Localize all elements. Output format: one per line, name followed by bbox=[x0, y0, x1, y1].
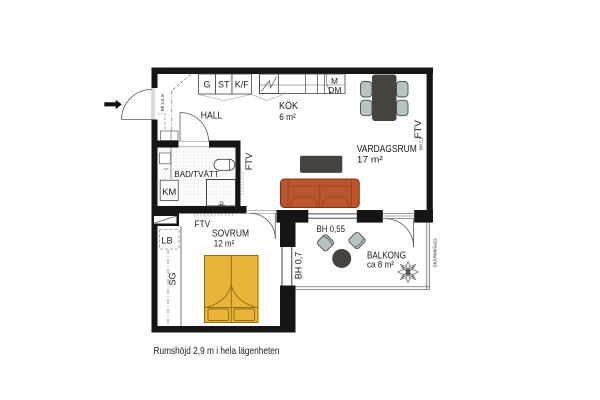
svg-text:G: G bbox=[203, 80, 210, 90]
svg-text:12 m²: 12 m² bbox=[214, 238, 235, 249]
svg-text:FTV: FTV bbox=[244, 152, 255, 170]
svg-text:BAD/TVÄTT: BAD/TVÄTT bbox=[174, 169, 219, 179]
svg-text:KÖK: KÖK bbox=[279, 100, 298, 112]
svg-text:DM: DM bbox=[328, 85, 341, 95]
svg-text:Rumshöjd 2,9 m i hela lägenhet: Rumshöjd 2,9 m i hela lägenheten bbox=[154, 346, 280, 357]
svg-text:BH 2,1: BH 2,1 bbox=[418, 136, 423, 149]
svg-text:SKÄRMVÄGG: SKÄRMVÄGG bbox=[432, 238, 438, 268]
svg-text:HALL: HALL bbox=[201, 110, 223, 121]
svg-text:Rh 2,6 m: Rh 2,6 m bbox=[160, 93, 165, 111]
svg-text:BH 0,7: BH 0,7 bbox=[294, 252, 304, 280]
svg-text:SG: SG bbox=[168, 272, 178, 285]
svg-text:6 m²: 6 m² bbox=[279, 112, 296, 123]
svg-text:FTV: FTV bbox=[194, 219, 210, 230]
svg-text:KM: KM bbox=[162, 187, 176, 198]
svg-text:LB: LB bbox=[161, 235, 172, 245]
svg-text:SCHAKT: SCHAKT bbox=[175, 69, 195, 74]
svg-text:FTV: FTV bbox=[413, 119, 424, 138]
svg-text:ST: ST bbox=[218, 80, 230, 90]
svg-text:17 m²: 17 m² bbox=[357, 155, 383, 166]
svg-text:VARDAGSRUM: VARDAGSRUM bbox=[357, 144, 417, 155]
svg-text:ca 8 m²: ca 8 m² bbox=[367, 259, 394, 270]
svg-text:BH 0,55: BH 0,55 bbox=[317, 224, 346, 234]
svg-text:K/F: K/F bbox=[235, 80, 250, 90]
